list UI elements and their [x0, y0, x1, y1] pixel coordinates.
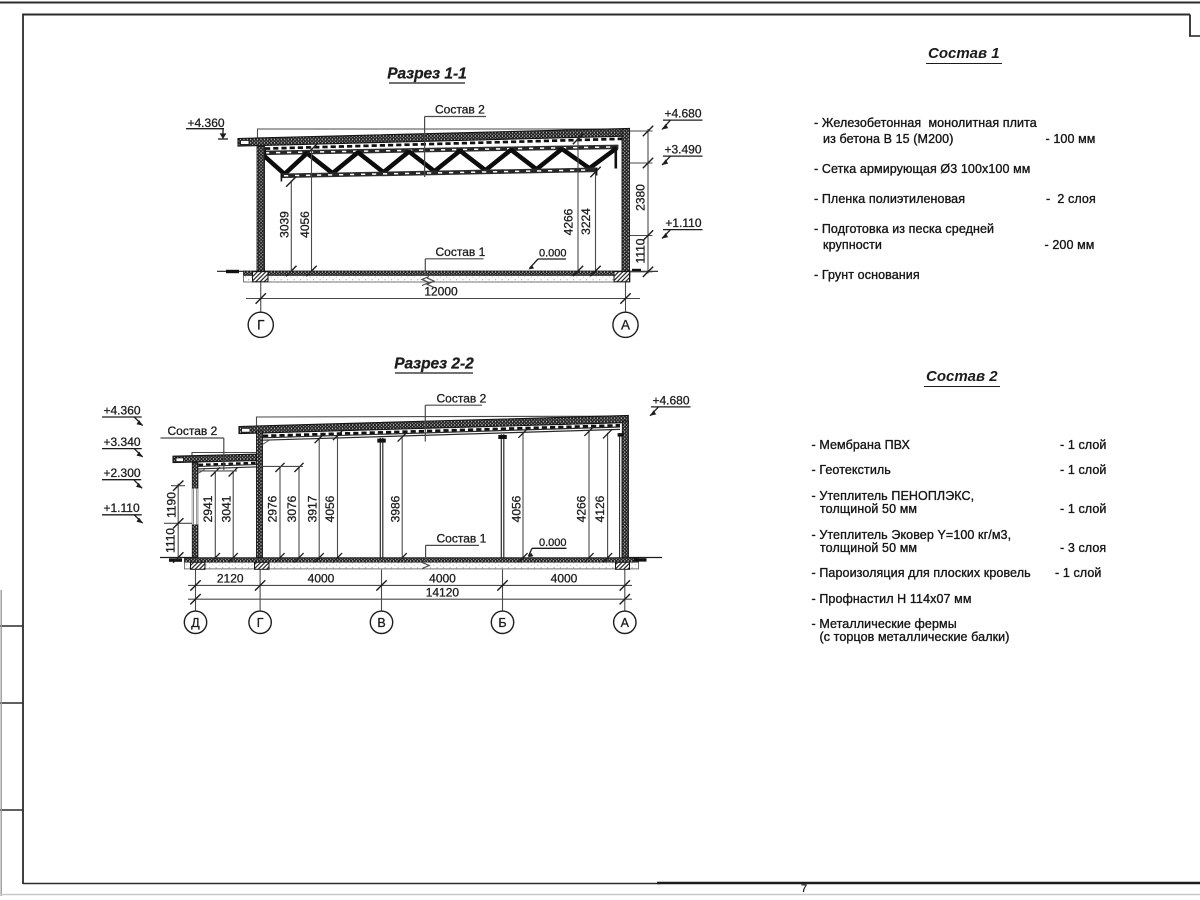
svg-text:+1.110: +1.110 [104, 501, 140, 515]
svg-text:+4.360: +4.360 [104, 403, 141, 417]
svg-text:+2.300: +2.300 [104, 466, 141, 480]
svg-text:2380: 2380 [633, 184, 647, 211]
svg-text:4126: 4126 [593, 495, 607, 522]
svg-text:Состав 1: Состав 1 [436, 245, 486, 259]
svg-text:В: В [377, 616, 385, 630]
svg-text:12000: 12000 [424, 285, 458, 299]
svg-text:Д: Д [191, 616, 200, 630]
svg-text:4056: 4056 [298, 211, 312, 238]
svg-text:+1.110: +1.110 [665, 216, 701, 230]
svg-text:3224: 3224 [579, 208, 593, 235]
svg-text:Разрез 2-2: Разрез 2-2 [394, 356, 474, 373]
svg-text:1190: 1190 [164, 492, 178, 518]
svg-text:+4.680: +4.680 [652, 393, 689, 407]
svg-text:0.000: 0.000 [539, 248, 567, 260]
svg-text:А: А [621, 318, 630, 333]
svg-text:4266: 4266 [561, 208, 575, 235]
svg-text:7: 7 [801, 883, 807, 895]
svg-text:3076: 3076 [285, 495, 299, 522]
svg-text:Состав 1: Состав 1 [437, 532, 487, 546]
svg-text:4000: 4000 [308, 572, 335, 586]
svg-text:0.000: 0.000 [539, 537, 567, 549]
svg-text:4056: 4056 [323, 495, 337, 522]
svg-text:1110: 1110 [634, 238, 648, 263]
svg-text:14120: 14120 [426, 585, 460, 599]
svg-text:2941: 2941 [201, 495, 215, 522]
svg-text:4056: 4056 [510, 495, 524, 522]
svg-text:3041: 3041 [220, 495, 234, 522]
svg-text:+3.340: +3.340 [104, 435, 141, 449]
svg-text:Состав 2: Состав 2 [437, 391, 487, 405]
svg-text:+4.360: +4.360 [188, 116, 225, 130]
svg-text:+3.490: +3.490 [664, 143, 701, 157]
svg-text:4000: 4000 [551, 572, 578, 586]
svg-text:А: А [621, 616, 630, 630]
svg-text:Разрез 1-1: Разрез 1-1 [387, 66, 467, 83]
svg-text:4000: 4000 [429, 572, 456, 586]
svg-text:4266: 4266 [574, 495, 588, 522]
svg-text:3917: 3917 [305, 495, 319, 522]
svg-text:3039: 3039 [278, 211, 292, 238]
svg-text:1110: 1110 [164, 528, 178, 553]
svg-text:Г: Г [257, 318, 265, 333]
svg-text:Г: Г [257, 616, 264, 630]
svg-text:3986: 3986 [389, 495, 403, 522]
svg-text:2120: 2120 [217, 572, 244, 586]
svg-text:Б: Б [498, 616, 506, 630]
svg-text:2976: 2976 [266, 495, 280, 522]
svg-text:Состав 2: Состав 2 [168, 424, 218, 438]
svg-text:Состав 2: Состав 2 [435, 103, 485, 117]
svg-text:+4.680: +4.680 [664, 107, 701, 121]
